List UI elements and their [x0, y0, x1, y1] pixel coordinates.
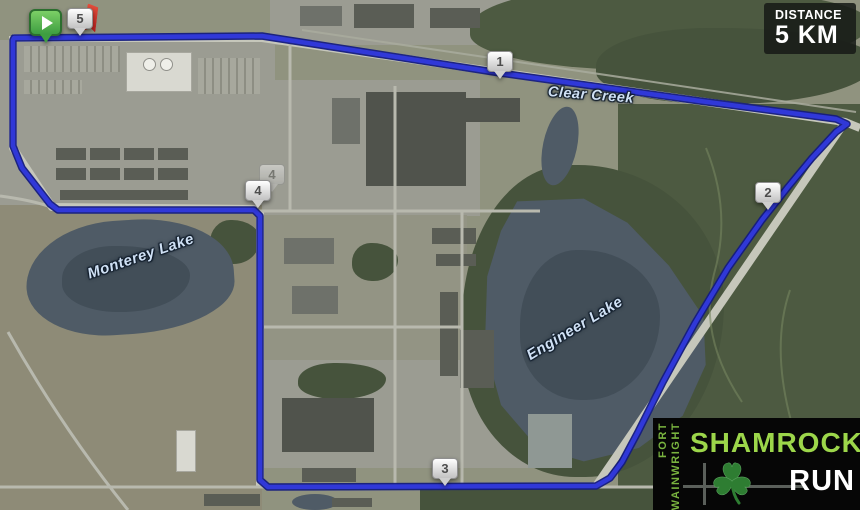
logo-location: FORT WAINWRIGHT	[657, 422, 683, 508]
km-marker-1[interactable]: 1	[487, 51, 513, 72]
logo-title: SHAMROCK	[690, 427, 860, 459]
distance-badge-label: DISTANCE	[775, 8, 842, 22]
logo-subtitle: RUN	[789, 465, 855, 498]
crosshair-vertical	[703, 463, 706, 505]
logo-location-line1: FORT	[657, 422, 670, 458]
route-map[interactable]: Clear Creek Monterey Lake Engineer Lake …	[0, 0, 860, 510]
start-marker[interactable]	[29, 9, 62, 36]
km-marker-5[interactable]: 5	[67, 8, 93, 29]
distance-badge: DISTANCE 5 KM	[764, 3, 856, 54]
km-marker-2[interactable]: 2	[755, 182, 781, 203]
km-marker-3[interactable]: 3	[432, 458, 458, 479]
distance-badge-value: 5 KM	[775, 22, 842, 48]
shamrock-icon	[711, 458, 753, 506]
km-marker-4[interactable]: 4	[245, 180, 271, 201]
event-logo: FORT WAINWRIGHT SHAMROCK RUN	[653, 418, 860, 510]
logo-location-line2: WAINWRIGHT	[670, 422, 683, 510]
play-icon	[42, 16, 53, 30]
